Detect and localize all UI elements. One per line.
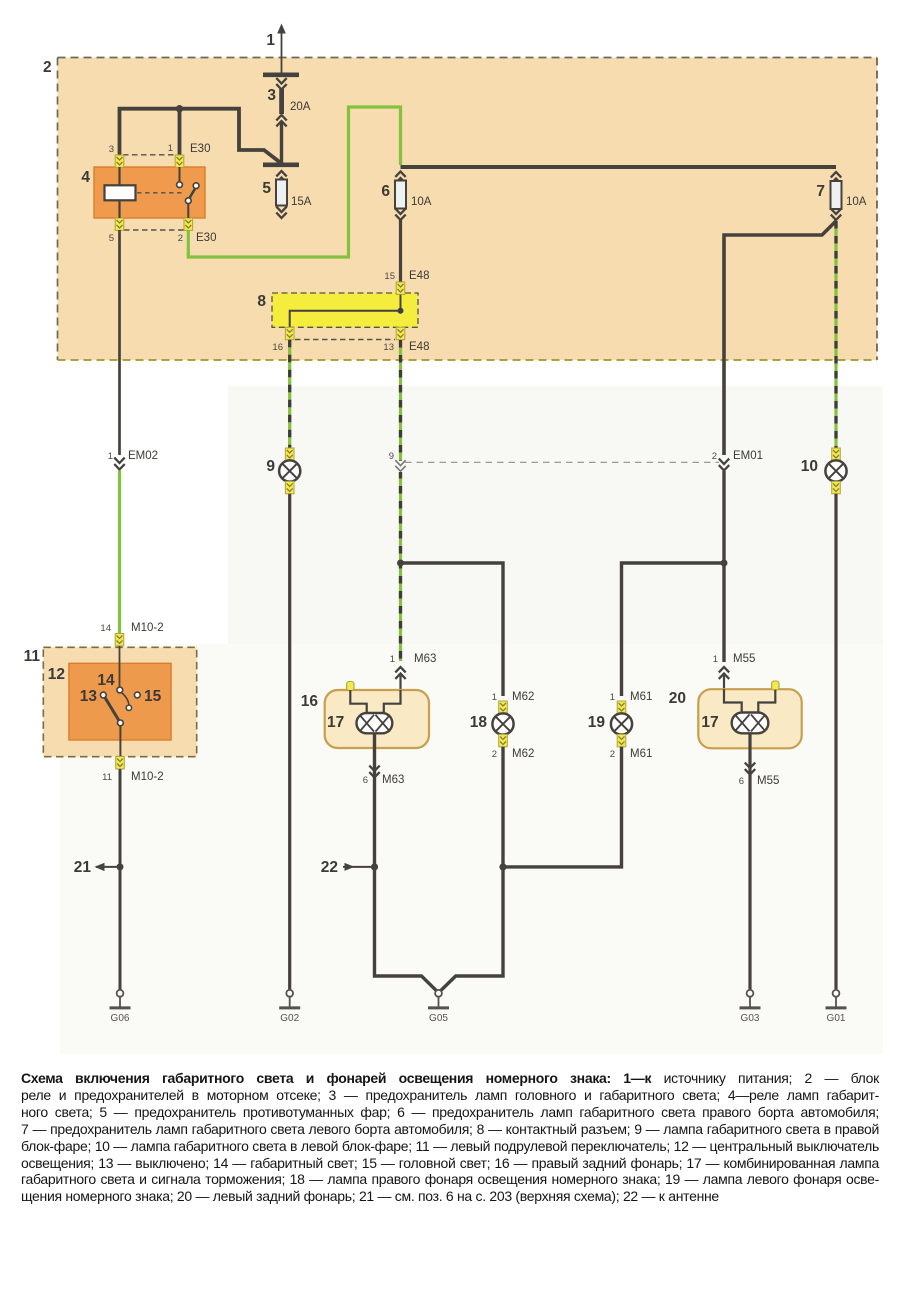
svg-text:M62: M62 [512, 691, 534, 703]
svg-text:1: 1 [610, 692, 615, 703]
svg-text:10A: 10A [846, 196, 867, 208]
svg-text:12: 12 [48, 666, 65, 683]
svg-text:1: 1 [266, 32, 275, 49]
svg-text:M63: M63 [382, 774, 404, 786]
svg-text:1: 1 [168, 143, 173, 154]
svg-text:G02: G02 [280, 1013, 299, 1024]
svg-text:15A: 15A [291, 196, 312, 208]
svg-text:G01: G01 [827, 1013, 846, 1024]
svg-text:M62: M62 [512, 748, 534, 760]
svg-text:6: 6 [739, 776, 744, 787]
svg-text:E30: E30 [196, 232, 216, 244]
svg-text:8: 8 [257, 293, 266, 310]
svg-text:17: 17 [327, 714, 344, 731]
svg-text:17: 17 [701, 714, 718, 731]
svg-text:3: 3 [267, 87, 276, 104]
svg-text:16: 16 [301, 693, 319, 710]
svg-text:M63: M63 [414, 653, 436, 665]
svg-text:11: 11 [24, 648, 41, 665]
svg-text:5: 5 [109, 233, 114, 244]
svg-text:M10-2: M10-2 [131, 771, 164, 783]
svg-text:11: 11 [102, 772, 112, 783]
svg-text:E48: E48 [409, 270, 429, 282]
svg-text:6: 6 [381, 183, 390, 200]
svg-text:21: 21 [74, 859, 92, 876]
svg-text:EM02: EM02 [128, 450, 158, 462]
svg-text:6: 6 [363, 775, 368, 786]
svg-text:2: 2 [43, 59, 52, 76]
svg-text:2: 2 [492, 749, 497, 760]
svg-text:20: 20 [669, 690, 686, 707]
svg-text:G05: G05 [429, 1013, 448, 1024]
svg-text:4: 4 [81, 169, 90, 186]
svg-text:18: 18 [470, 714, 488, 731]
svg-text:2: 2 [178, 233, 183, 244]
svg-text:13: 13 [80, 688, 98, 705]
svg-text:15: 15 [144, 688, 162, 705]
svg-text:14: 14 [100, 623, 111, 634]
svg-text:9: 9 [266, 458, 275, 475]
svg-text:5: 5 [262, 180, 271, 197]
svg-text:16: 16 [272, 342, 283, 353]
svg-text:E48: E48 [409, 341, 429, 353]
svg-text:1: 1 [390, 654, 395, 665]
svg-text:M10-2: M10-2 [131, 622, 164, 634]
svg-text:M61: M61 [630, 691, 652, 703]
svg-text:G03: G03 [741, 1013, 760, 1024]
svg-text:M55: M55 [757, 775, 779, 787]
svg-text:9: 9 [389, 451, 394, 462]
svg-text:1: 1 [108, 451, 113, 462]
svg-text:22: 22 [321, 859, 338, 876]
svg-text:EM01: EM01 [733, 450, 763, 462]
svg-text:14: 14 [97, 672, 115, 689]
svg-text:10A: 10A [411, 196, 432, 208]
svg-text:20A: 20A [290, 101, 311, 113]
svg-text:2: 2 [712, 451, 717, 462]
svg-text:M61: M61 [630, 748, 652, 760]
svg-text:E30: E30 [190, 143, 210, 155]
svg-text:15: 15 [384, 271, 395, 282]
svg-text:13: 13 [383, 342, 394, 353]
svg-text:G06: G06 [111, 1013, 130, 1024]
svg-text:7: 7 [816, 183, 825, 200]
svg-text:M55: M55 [733, 653, 755, 665]
svg-text:1: 1 [713, 654, 718, 665]
svg-text:10: 10 [801, 458, 818, 475]
svg-text:3: 3 [109, 144, 114, 155]
svg-text:2: 2 [610, 749, 615, 760]
svg-text:19: 19 [588, 714, 606, 731]
svg-text:1: 1 [492, 692, 497, 703]
